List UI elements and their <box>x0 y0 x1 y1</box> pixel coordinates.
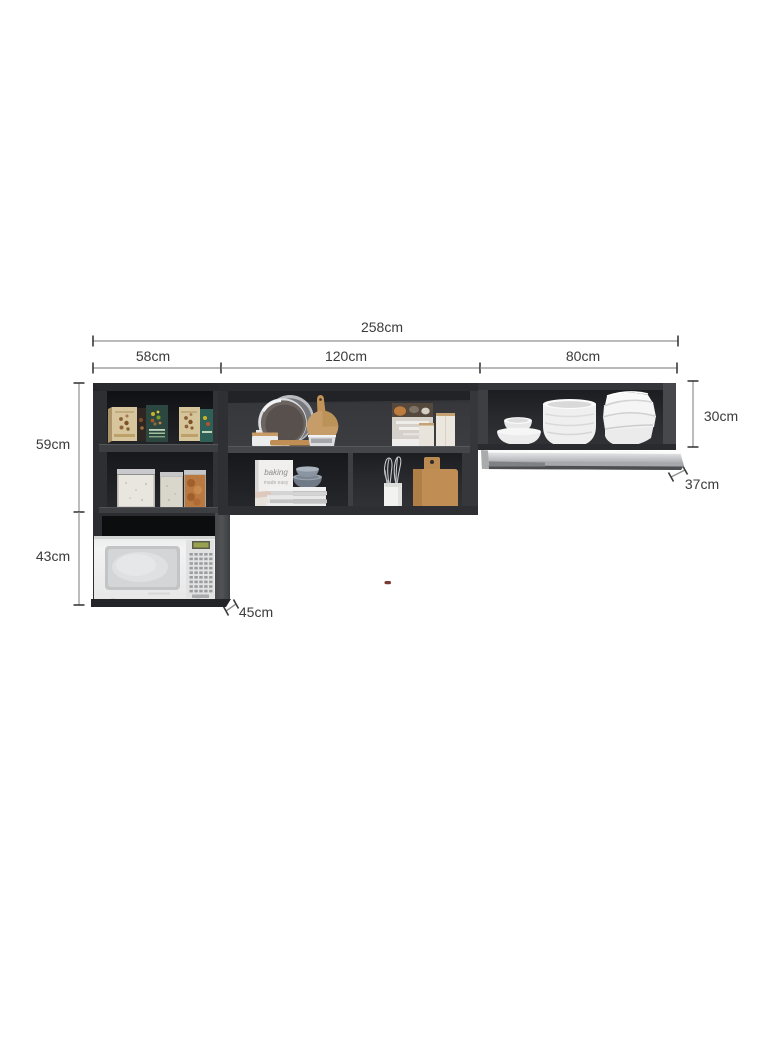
svg-text:80cm: 80cm <box>566 348 600 364</box>
svg-text:43cm: 43cm <box>36 548 70 564</box>
svg-text:37cm: 37cm <box>685 476 719 492</box>
svg-text:59cm: 59cm <box>36 436 70 452</box>
svg-text:120cm: 120cm <box>325 348 367 364</box>
svg-text:30cm: 30cm <box>704 408 738 424</box>
svg-text:45cm: 45cm <box>239 604 273 620</box>
svg-text:58cm: 58cm <box>136 348 170 364</box>
svg-text:258cm: 258cm <box>361 319 403 335</box>
svg-text:baking: baking <box>264 468 288 477</box>
svg-text:made easy: made easy <box>264 480 289 486</box>
